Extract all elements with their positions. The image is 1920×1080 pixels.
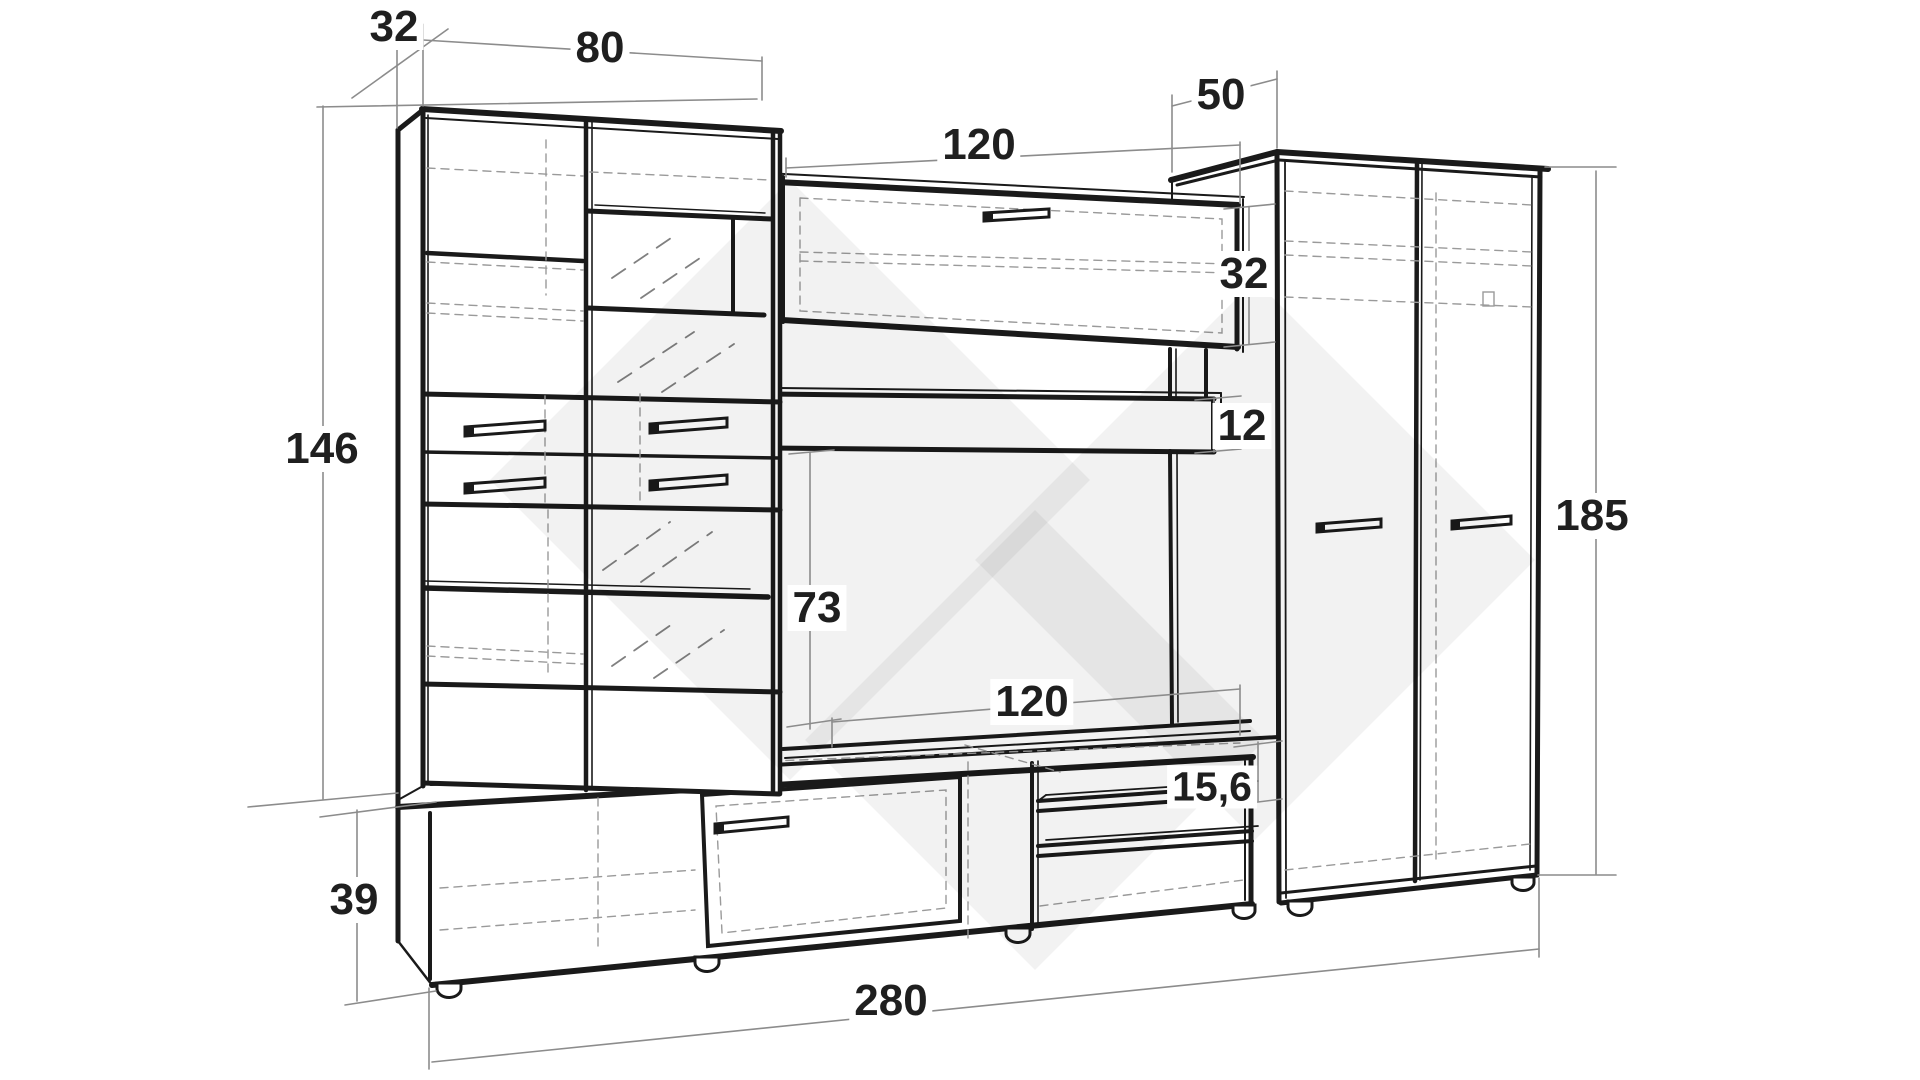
dim-label-left-depth: 32 — [365, 4, 424, 50]
dim-label-wardrobe-depth: 50 — [1192, 72, 1251, 118]
dim-label-shelf-gap: 15,6 — [1167, 766, 1257, 809]
dim-label-wall-cabinet-height: 32 — [1215, 251, 1274, 297]
dim-label-left-height: 146 — [280, 426, 363, 472]
dim-label-stand-section-width: 120 — [990, 679, 1073, 725]
furniture-dimension-diagram: 32 80 120 50 32 12 146 73 120 15,6 39 28… — [0, 0, 1920, 1080]
dim-label-tv-space-height: 73 — [788, 585, 847, 631]
dim-label-shelf-thickness: 12 — [1213, 403, 1272, 449]
dim-label-left-width: 80 — [571, 25, 630, 71]
dim-label-wall-cabinet-width: 120 — [937, 122, 1020, 168]
dim-label-total-width: 280 — [849, 978, 932, 1024]
dim-label-stand-height: 39 — [325, 877, 384, 923]
dim-label-wardrobe-height: 185 — [1550, 493, 1633, 539]
